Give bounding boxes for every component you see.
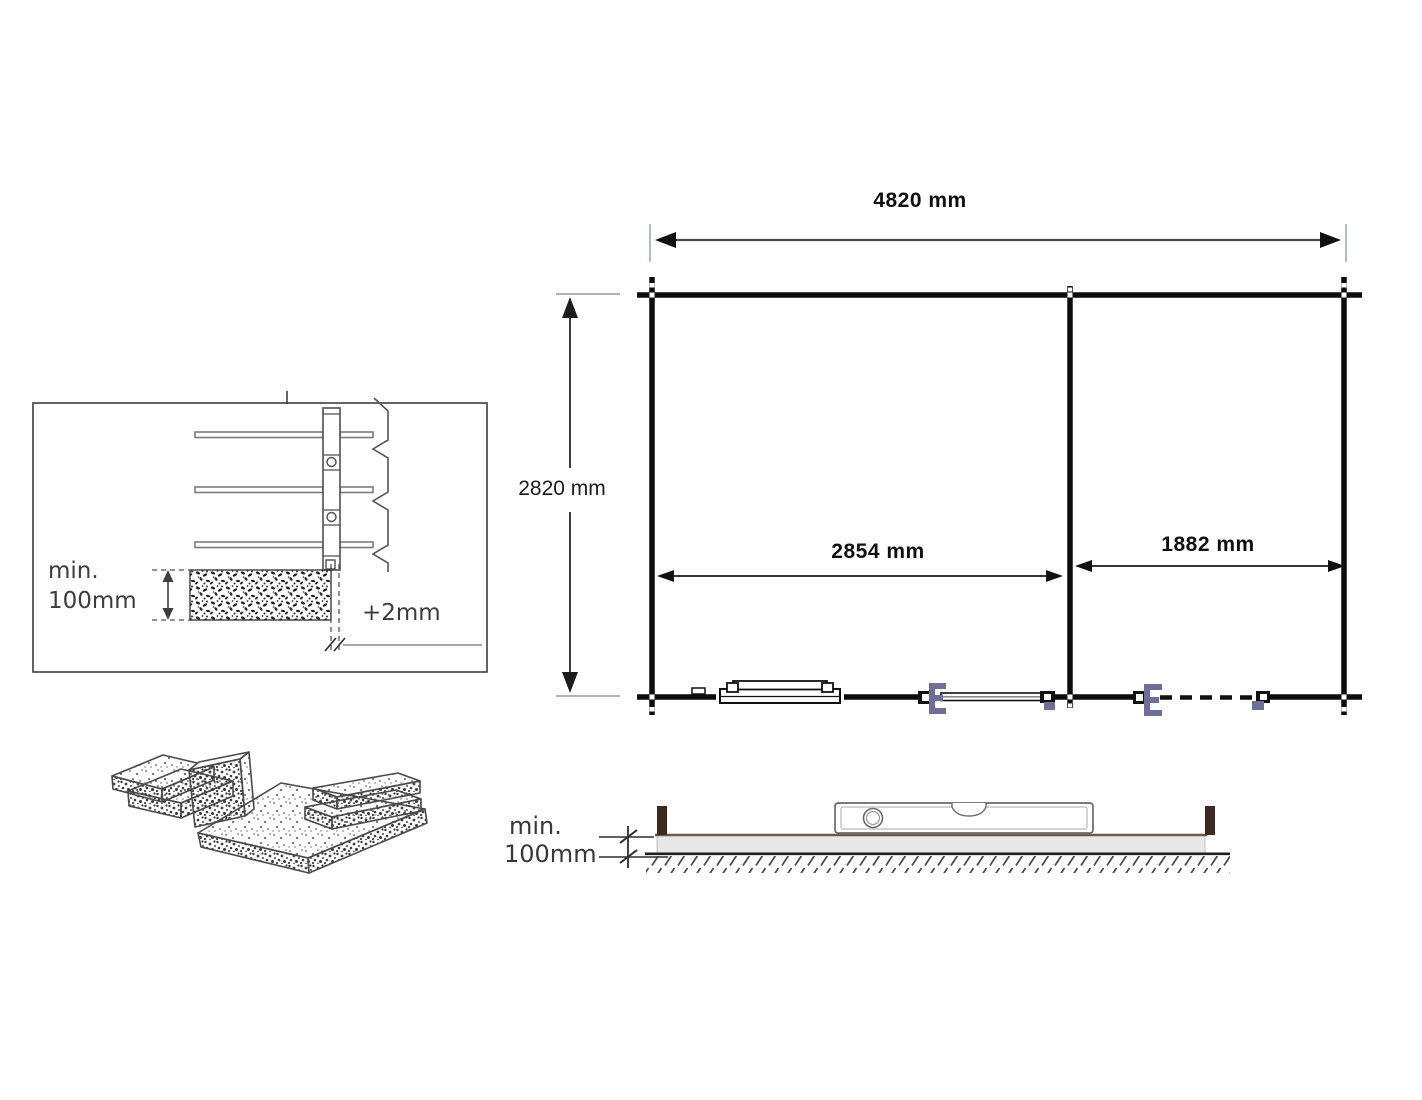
detail-min-label: min.	[48, 560, 99, 583]
left-room-width-label: 2854 mm	[831, 541, 924, 562]
spirit-level	[835, 803, 1093, 833]
hinge-plate	[1252, 701, 1264, 710]
door-right-room	[1133, 684, 1270, 716]
side-min-label: min.	[509, 814, 562, 838]
overall-depth-label: 2820 mm	[518, 478, 606, 499]
dimension-overall-width	[650, 224, 1346, 262]
floor-plan	[556, 224, 1362, 716]
foundation-slabs	[112, 752, 427, 873]
dimension-right-room	[1075, 560, 1345, 572]
wall-foundation-detail	[33, 391, 487, 672]
foundation-strip	[190, 570, 331, 620]
standing-slab	[189, 759, 245, 827]
detail-tolerance-label: +2mm	[362, 602, 441, 625]
overall-width-label: 4820 mm	[873, 190, 966, 211]
corner-joint-gaps	[650, 283, 1347, 712]
arrowhead-down	[562, 672, 578, 693]
dimension-left-room	[657, 570, 1063, 582]
foundation-pad	[657, 835, 1205, 853]
arrowhead-left	[655, 232, 676, 248]
detail-box-border	[33, 403, 487, 672]
door-left-room	[918, 683, 1055, 714]
side-min-value: 100mm	[504, 842, 597, 866]
wall-notch	[692, 688, 705, 694]
assembly-diagram-page: 4820 mm 2820 mm 2854 mm 1882 mm min. 100…	[0, 0, 1422, 1100]
window	[716, 681, 844, 705]
corner-post	[1205, 806, 1215, 835]
corner-post	[657, 806, 667, 835]
walls	[637, 277, 1362, 715]
ground-hatching	[646, 856, 1230, 873]
corner-board	[323, 408, 340, 570]
arrowhead-right	[1320, 232, 1341, 248]
hinge-plate	[1044, 702, 1055, 710]
side-view	[599, 803, 1230, 873]
detail-min-value: 100mm	[48, 590, 137, 613]
arrowhead-up	[562, 297, 578, 318]
right-room-width-label: 1882 mm	[1161, 534, 1254, 555]
